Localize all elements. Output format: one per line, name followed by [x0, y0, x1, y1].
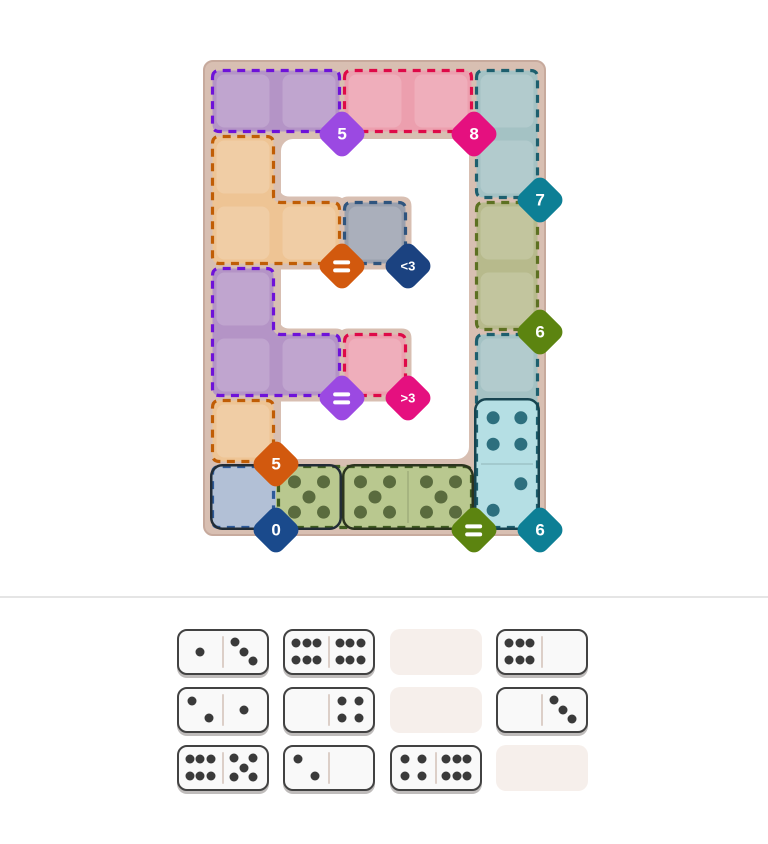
tray-pip: [230, 772, 239, 781]
tray-domino-divider: [328, 752, 330, 784]
badge-label: 7: [535, 192, 544, 209]
tray-pip: [442, 771, 451, 780]
tray-pip: [206, 771, 215, 780]
badge-label: 6: [535, 522, 544, 539]
tray-pip: [559, 705, 568, 714]
tray-pip: [550, 696, 559, 705]
tray-domino-divider: [328, 694, 330, 726]
tray-pip: [292, 639, 301, 648]
badge-label: >3: [401, 391, 416, 404]
tray-pip: [400, 754, 409, 763]
tray-pip: [239, 647, 248, 656]
tray-pip: [204, 714, 213, 723]
tray-pip: [515, 639, 524, 648]
badge-label: [466, 522, 483, 538]
tray-pip: [417, 772, 426, 781]
tray-pip: [337, 696, 346, 705]
tray-pip: [400, 772, 409, 781]
badge-label: [334, 258, 351, 274]
tray-pip: [417, 754, 426, 763]
tray-pip: [294, 754, 303, 763]
tray-pip: [187, 696, 196, 705]
tray-pip: [230, 638, 239, 647]
tray-pip: [452, 771, 461, 780]
tray-domino-divider: [222, 752, 224, 784]
tray-pip: [526, 639, 535, 648]
tray-pip: [185, 755, 194, 764]
tray-pip: [185, 771, 194, 780]
tray-pip: [356, 655, 365, 664]
tray-pip: [463, 771, 472, 780]
tray-domino-divider: [541, 694, 543, 726]
tray-pip: [505, 655, 514, 664]
tray-pip: [239, 763, 248, 772]
tray-pip: [568, 714, 577, 723]
tray-pip: [313, 655, 322, 664]
tray-pip: [337, 714, 346, 723]
tray-pip: [452, 755, 461, 764]
tray-pip: [196, 647, 205, 656]
tray-pip: [249, 772, 258, 781]
tray-pip: [346, 639, 355, 648]
tray-pip: [206, 755, 215, 764]
tray-pip: [239, 705, 248, 714]
tray-pip: [442, 755, 451, 764]
tray-pip: [302, 639, 311, 648]
tray-domino-2-1[interactable]: [177, 687, 269, 733]
tray-pip: [196, 771, 205, 780]
tray-pip: [230, 754, 239, 763]
tray-domino-divider: [328, 636, 330, 668]
tray-pip: [335, 639, 344, 648]
tray-domino-divider: [222, 694, 224, 726]
tray-pip: [292, 655, 301, 664]
tray-slot-empty: [496, 745, 588, 791]
badge-label: <3: [401, 259, 416, 272]
tray-domino-6-0[interactable]: [496, 629, 588, 675]
badge-label: 6: [535, 324, 544, 341]
tray-pip: [302, 655, 311, 664]
board-tray-divider: [0, 596, 768, 598]
tray-domino-2-0[interactable]: [283, 745, 375, 791]
tray-pip: [249, 754, 258, 763]
tray-domino-0-3[interactable]: [496, 687, 588, 733]
tray-domino-4-6[interactable]: [390, 745, 482, 791]
tray-pip: [354, 714, 363, 723]
tray-slot-empty: [390, 629, 482, 675]
tray-domino-0-4[interactable]: [283, 687, 375, 733]
tray-domino-divider: [222, 636, 224, 668]
tray-pip: [248, 656, 257, 665]
tray-domino-1-3[interactable]: [177, 629, 269, 675]
tray-pip: [526, 655, 535, 664]
tray-pip: [311, 772, 320, 781]
tray-domino-6-5[interactable]: [177, 745, 269, 791]
game-stage: 587<36>3506: [0, 0, 768, 844]
badge-label: 8: [469, 126, 478, 143]
tray-pip: [313, 639, 322, 648]
tray-pip: [356, 639, 365, 648]
tray-pip: [354, 696, 363, 705]
tray-domino-6-6[interactable]: [283, 629, 375, 675]
tray-pip: [196, 755, 205, 764]
badge-label: 5: [337, 126, 346, 143]
tray-domino-divider: [541, 636, 543, 668]
tray-pip: [463, 755, 472, 764]
tray-pip: [346, 655, 355, 664]
tray-domino-divider: [435, 752, 437, 784]
tray-slot-empty: [390, 687, 482, 733]
tray-pip: [515, 655, 524, 664]
tray-pip: [505, 639, 514, 648]
tray-pip: [335, 655, 344, 664]
badge-label: 0: [271, 522, 280, 539]
badge-label: [334, 390, 351, 406]
badge-label: 5: [271, 456, 280, 473]
